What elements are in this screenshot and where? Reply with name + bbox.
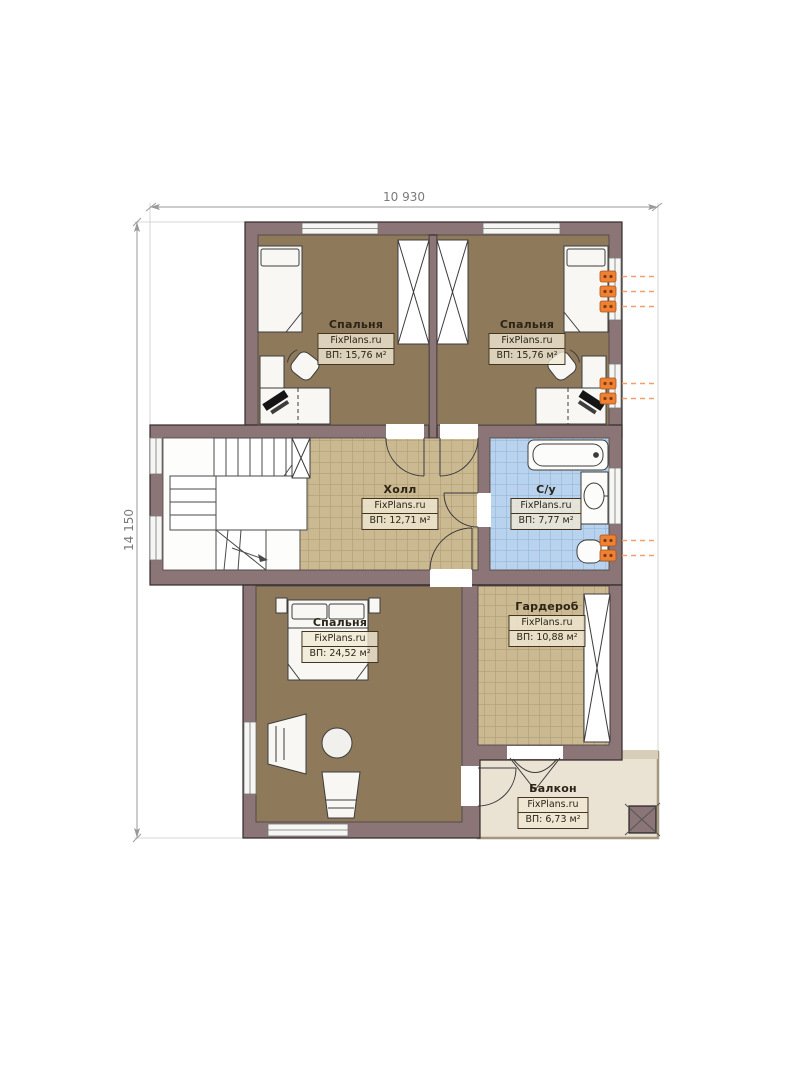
room-name: С/у <box>510 483 581 496</box>
coffee-table <box>322 728 352 758</box>
door-opening-bedroom-top-right <box>440 424 478 439</box>
room-watermark: FixPlans.ru <box>362 499 437 514</box>
room-watermark: FixPlans.ru <box>518 798 587 813</box>
room-info-box: FixPlans.ru ВП: 12,71 м² <box>361 498 438 530</box>
floor-plan-canvas: 10 930 14 150 Спальня FixPlans.ru ВП: 15… <box>0 0 792 1080</box>
dimension-width-label: 10 930 <box>383 190 425 204</box>
room-area: ВП: 6,73 м² <box>518 813 587 827</box>
bathtub <box>528 440 608 470</box>
window-stair-left-2 <box>150 516 162 560</box>
room-label-bedroom-top-right: Спальня FixPlans.ru ВП: 15,76 м² <box>488 318 565 365</box>
window-stair-left-1 <box>150 438 162 474</box>
armchair-bottom <box>322 772 360 818</box>
room-area: ВП: 12,71 м² <box>362 514 437 528</box>
closet-bedroom-right <box>437 240 468 344</box>
room-info-box: FixPlans.ru ВП: 15,76 м² <box>488 333 565 365</box>
window-bottom-left <box>244 722 256 794</box>
room-name: Гардероб <box>508 600 585 613</box>
sink <box>581 472 608 524</box>
room-watermark: FixPlans.ru <box>489 334 564 349</box>
balcony-column <box>625 803 660 836</box>
room-watermark: FixPlans.ru <box>318 334 393 349</box>
room-watermark: FixPlans.ru <box>509 616 584 631</box>
room-area: ВП: 15,76 м² <box>489 349 564 363</box>
room-watermark: FixPlans.ru <box>511 499 580 514</box>
room-label-bedroom-bottom: Спальня FixPlans.ru ВП: 24,52 м² <box>301 616 378 663</box>
room-label-bedroom-top-left: Спальня FixPlans.ru ВП: 15,76 м² <box>317 318 394 365</box>
room-info-box: FixPlans.ru ВП: 24,52 м² <box>301 631 378 663</box>
room-info-box: FixPlans.ru ВП: 10,88 м² <box>508 615 585 647</box>
window-bottom <box>268 824 348 836</box>
door-opening-bedroom-bottom <box>430 569 472 587</box>
room-name: Спальня <box>488 318 565 331</box>
room-info-box: FixPlans.ru ВП: 7,77 м² <box>510 498 581 530</box>
room-watermark: FixPlans.ru <box>302 632 377 647</box>
room-area: ВП: 15,76 м² <box>318 349 393 363</box>
closet-wardrobe <box>584 594 610 742</box>
stair-void <box>216 476 307 530</box>
room-label-hall: Холл FixPlans.ru ВП: 12,71 м² <box>361 483 438 530</box>
armchair-left <box>268 714 306 774</box>
room-info-box: FixPlans.ru ВП: 6,73 м² <box>517 797 588 829</box>
room-area: ВП: 7,77 м² <box>511 514 580 528</box>
window-top-2 <box>483 223 560 234</box>
door-opening-bathroom <box>477 493 491 527</box>
closet-bedroom-left <box>398 240 429 344</box>
dimension-height-label: 14 150 <box>122 509 136 551</box>
room-name: Балкон <box>517 782 588 795</box>
room-name: Спальня <box>317 318 394 331</box>
door-opening-bedroom-top-left <box>386 424 424 439</box>
room-name: Холл <box>361 483 438 496</box>
room-label-balcony: Балкон FixPlans.ru ВП: 6,73 м² <box>517 782 588 829</box>
balcony-outer-wall <box>620 750 658 759</box>
room-label-bathroom: С/у FixPlans.ru ВП: 7,77 м² <box>510 483 581 530</box>
wall-bedroom-partition <box>429 235 437 438</box>
door-opening-balcony-bedroom <box>461 766 479 806</box>
window-top-1 <box>302 223 378 234</box>
room-name: Спальня <box>301 616 378 629</box>
closet-hall <box>292 438 310 478</box>
room-info-box: FixPlans.ru ВП: 15,76 м² <box>317 333 394 365</box>
room-label-wardrobe: Гардероб FixPlans.ru ВП: 10,88 м² <box>508 600 585 647</box>
window-right-bathroom <box>609 468 621 524</box>
outlet-group-top <box>600 271 655 312</box>
room-area: ВП: 10,88 м² <box>509 631 584 645</box>
floor-plan-svg <box>0 0 792 1080</box>
door-opening-balcony-wardrobe <box>507 746 563 759</box>
room-area: ВП: 24,52 м² <box>302 647 377 661</box>
bed-single-left <box>258 246 302 332</box>
